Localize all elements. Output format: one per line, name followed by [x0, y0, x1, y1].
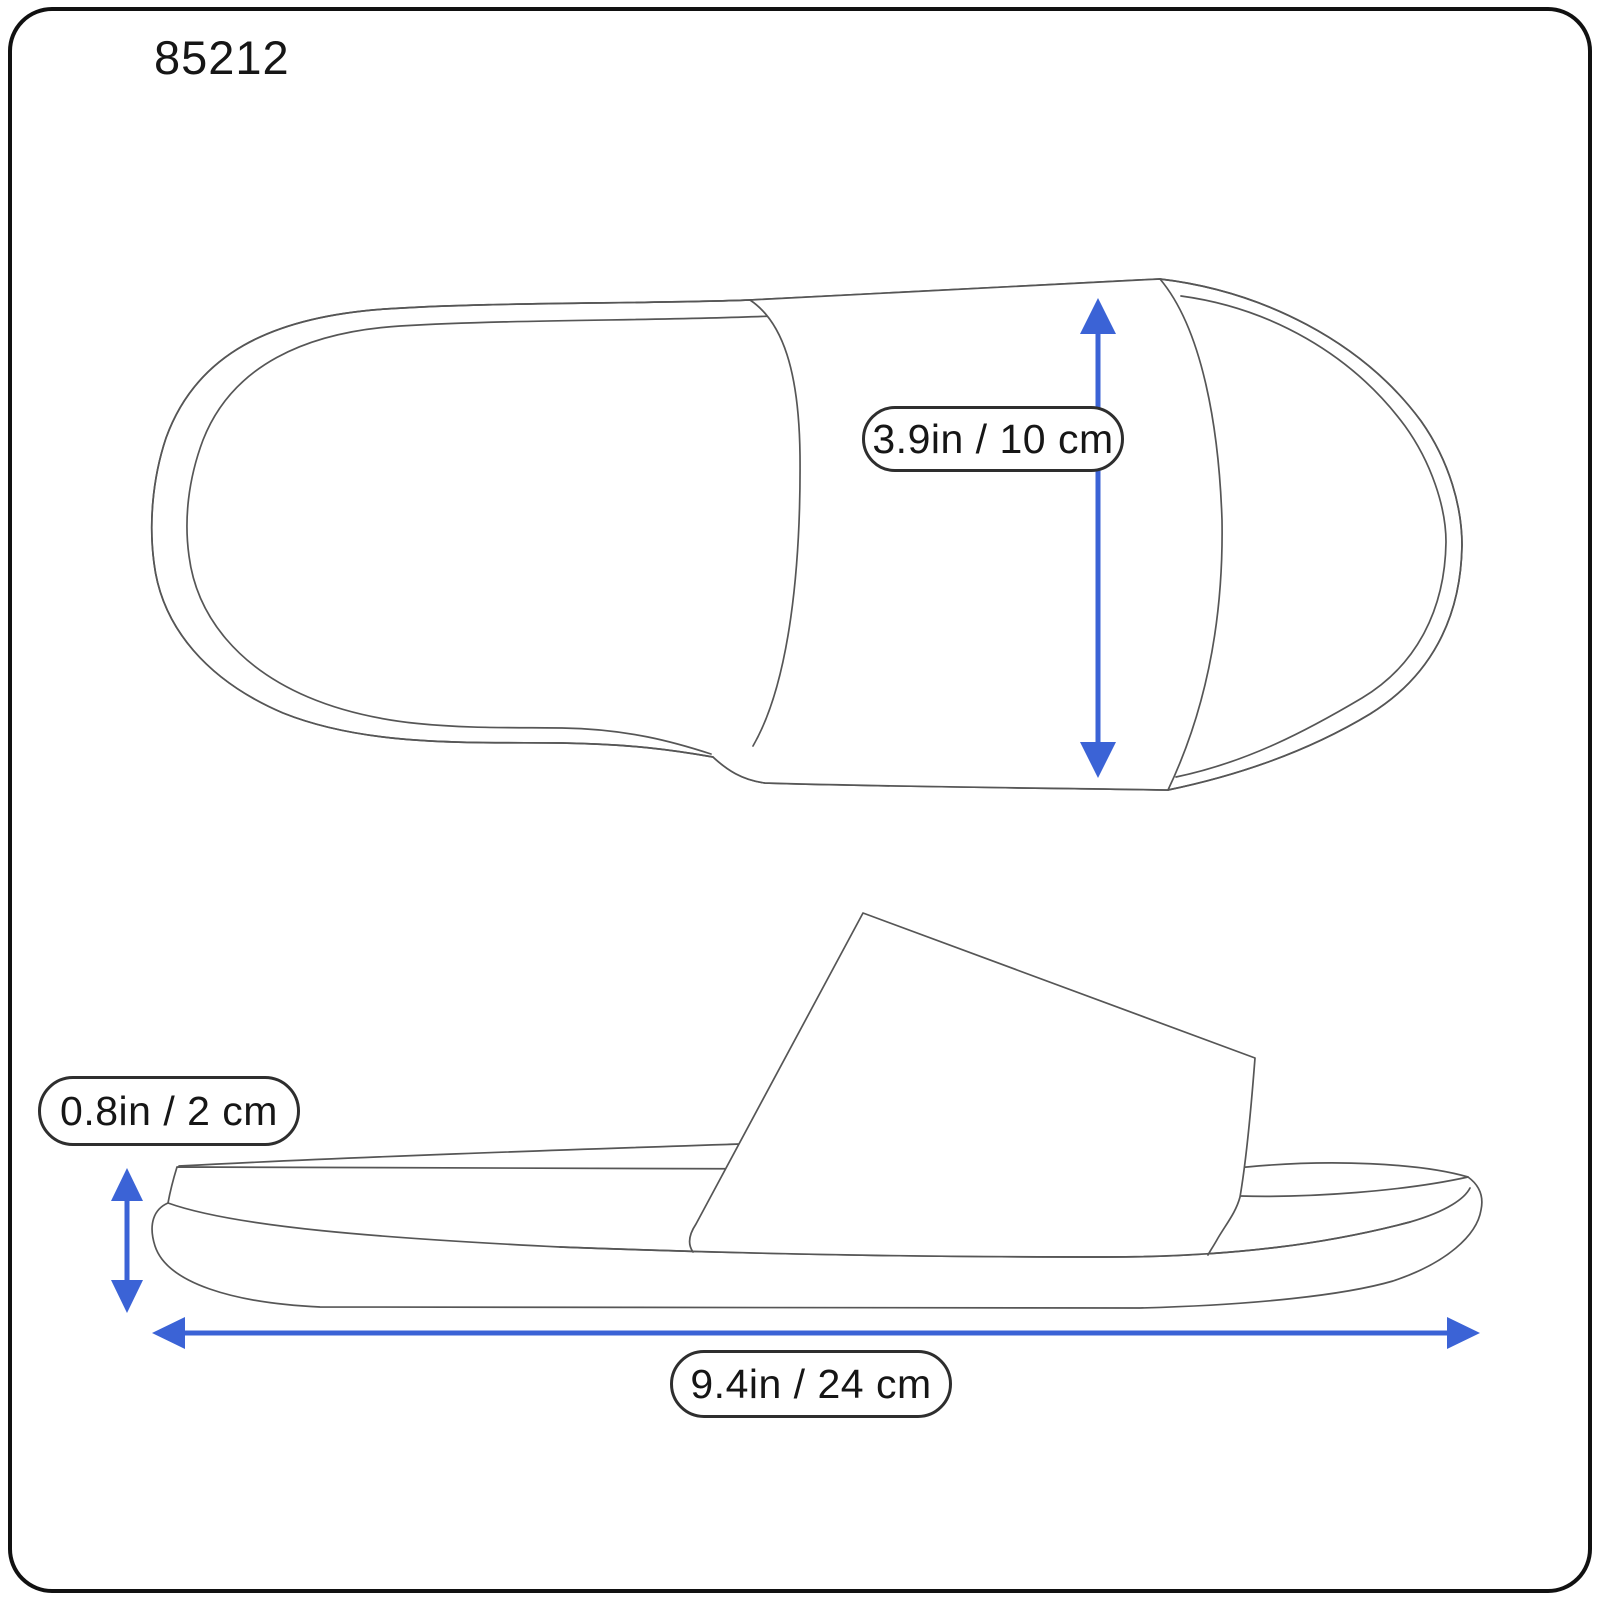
- top-view-drawing: [152, 279, 1462, 790]
- product-dimension-diagram: 85212 3.9in / 10 cm 0.8in / 2 cm 9.4in /…: [0, 0, 1600, 1600]
- sole-height-label: 0.8in / 2 cm: [38, 1076, 300, 1146]
- length-label: 9.4in / 24 cm: [670, 1350, 952, 1418]
- strap-width-label: 3.9in / 10 cm: [862, 406, 1124, 472]
- model-number: 85212: [154, 30, 290, 85]
